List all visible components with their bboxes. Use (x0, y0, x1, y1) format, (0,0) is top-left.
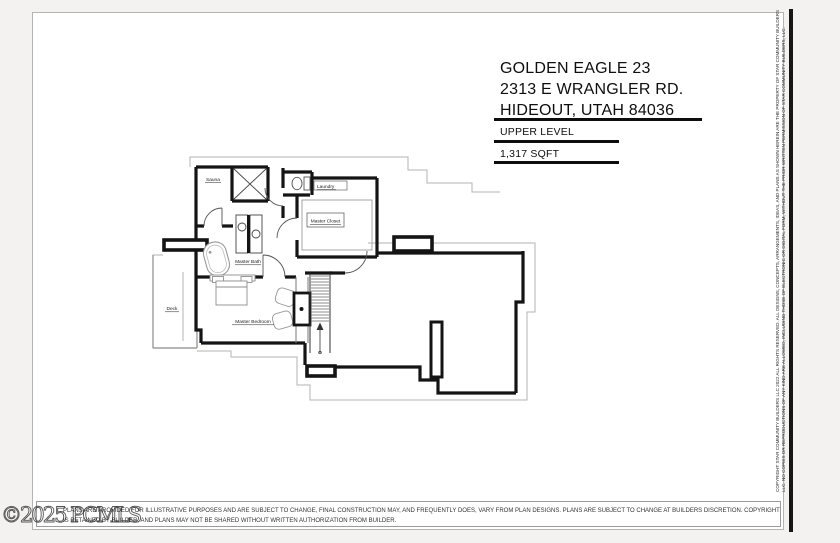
room-label-sauna: Sauna (206, 177, 220, 183)
toilet-icon (292, 177, 310, 190)
disclaimer-line2: IS RETAINED BY BUILDER, AND PLANS MAY NO… (63, 516, 772, 526)
disclaimer-box: PLANS ARE PROVIDED FOR ILLUSTRATIVE PURP… (36, 501, 781, 527)
sidebar-copyright: COPYRIGHT STAR COMMUNITY BUILDERS LLC 20… (775, 40, 787, 492)
bed (210, 275, 255, 305)
stairs (310, 273, 330, 354)
room-label-master-bath: Master Bath (235, 259, 261, 265)
room-label-deck: Deck (167, 306, 179, 312)
room-label-laundry: Laundry (317, 184, 335, 190)
sidebar-copyright-line2: LLC. NO COPIES OR REPRODUCTIONS OF ANY K… (781, 40, 787, 492)
stair-bay-window (307, 366, 335, 376)
floor-plan-drawing: Sauna Laundry Master Closet Master Bath … (0, 0, 840, 543)
room-label-master-closet: Master Closet (311, 219, 341, 225)
stair-up-arrow (317, 323, 324, 331)
great-room-window (394, 237, 432, 251)
deck-window (164, 240, 207, 250)
vanity (236, 215, 262, 253)
shower (234, 169, 267, 200)
mls-watermark: ©2025 PCMLS (1, 503, 140, 527)
disclaimer-line1: PLANS ARE PROVIDED FOR ILLUSTRATIVE PURP… (63, 506, 772, 516)
closet-interior (302, 200, 372, 250)
great-room-wall-stub (431, 322, 442, 377)
floor-plan-page: { "colors": { "ink": "#161616", "underla… (0, 0, 840, 543)
fireplace (294, 277, 310, 343)
deck-outline (153, 253, 197, 348)
room-label-master-bedroom: Master Bedroom (235, 319, 270, 325)
